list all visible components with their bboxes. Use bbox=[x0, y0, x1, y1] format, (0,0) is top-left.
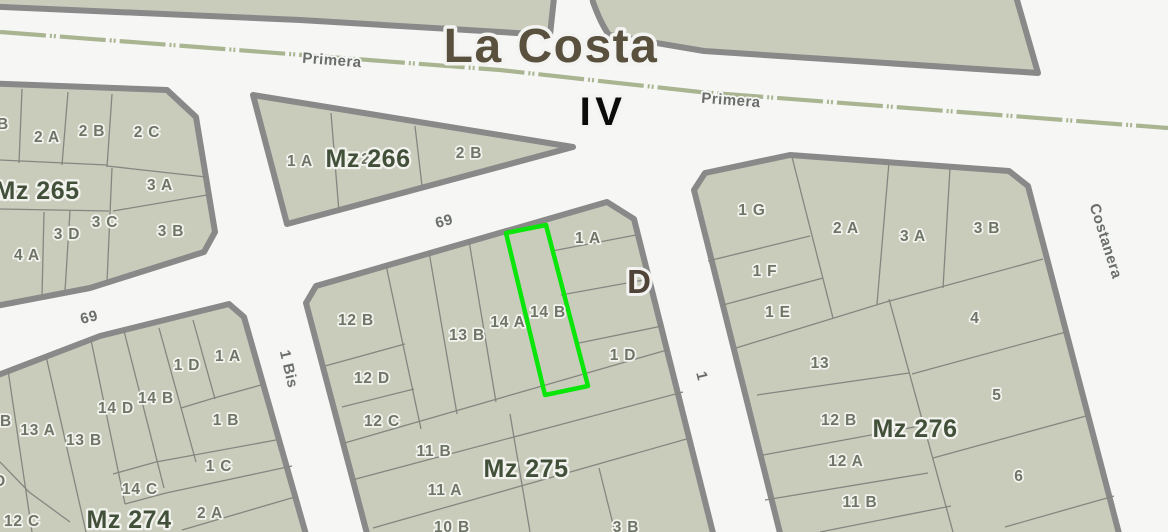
svg-text:3 A: 3 A bbox=[147, 177, 173, 194]
svg-text:3 B: 3 B bbox=[613, 519, 640, 532]
svg-text:La Costa: La Costa bbox=[444, 20, 659, 73]
svg-text:3 A: 3 A bbox=[900, 228, 926, 245]
svg-text:12 A: 12 A bbox=[828, 453, 863, 470]
svg-text:1 D: 1 D bbox=[610, 347, 637, 364]
svg-text:1 A: 1 A bbox=[575, 230, 601, 247]
svg-text:12 B: 12 B bbox=[821, 412, 857, 429]
svg-text:Mz 266: Mz 266 bbox=[326, 145, 411, 173]
svg-text:IV: IV bbox=[580, 90, 627, 134]
svg-text:4: 4 bbox=[970, 310, 979, 327]
svg-text:B: B bbox=[0, 413, 12, 430]
svg-text:Mz 275: Mz 275 bbox=[484, 455, 569, 483]
svg-text:14 B: 14 B bbox=[138, 390, 174, 407]
svg-text:6: 6 bbox=[1014, 468, 1023, 485]
svg-text:3 D: 3 D bbox=[54, 226, 81, 243]
svg-text:14 B: 14 B bbox=[530, 304, 566, 321]
svg-text:12 B: 12 B bbox=[338, 312, 374, 329]
svg-text:13 A: 13 A bbox=[20, 422, 55, 439]
svg-text:11 B: 11 B bbox=[842, 494, 877, 511]
svg-text:B: B bbox=[0, 116, 9, 133]
svg-text:11 A: 11 A bbox=[428, 482, 463, 499]
svg-text:13: 13 bbox=[811, 355, 830, 372]
svg-text:D: D bbox=[627, 263, 651, 300]
svg-text:3 B: 3 B bbox=[974, 220, 1001, 237]
svg-text:D: D bbox=[0, 473, 6, 490]
svg-text:5: 5 bbox=[992, 387, 1001, 404]
svg-text:1 A: 1 A bbox=[215, 348, 241, 365]
svg-text:Mz 276: Mz 276 bbox=[873, 415, 958, 443]
svg-text:2 B: 2 B bbox=[456, 145, 483, 162]
svg-text:3 C: 3 C bbox=[92, 214, 119, 231]
svg-text:Mz 274: Mz 274 bbox=[87, 506, 172, 532]
svg-text:14 C: 14 C bbox=[122, 481, 158, 498]
svg-text:1 A: 1 A bbox=[287, 153, 313, 170]
svg-text:2 C: 2 C bbox=[134, 124, 161, 141]
svg-text:2 A: 2 A bbox=[197, 505, 223, 522]
svg-text:12 C: 12 C bbox=[4, 513, 40, 530]
svg-text:1 E: 1 E bbox=[765, 304, 791, 321]
svg-text:1 G: 1 G bbox=[738, 202, 765, 219]
svg-text:12 C: 12 C bbox=[364, 413, 400, 430]
svg-text:1 F: 1 F bbox=[753, 263, 778, 280]
svg-text:11 B: 11 B bbox=[416, 443, 451, 460]
svg-text:2 A: 2 A bbox=[833, 220, 859, 237]
svg-text:10 B: 10 B bbox=[434, 519, 470, 532]
svg-text:13 B: 13 B bbox=[449, 327, 485, 344]
svg-text:2 A: 2 A bbox=[34, 129, 60, 146]
svg-text:4 A: 4 A bbox=[14, 247, 40, 264]
svg-text:1 B: 1 B bbox=[213, 412, 240, 429]
svg-text:1 D: 1 D bbox=[174, 357, 201, 374]
svg-text:12 D: 12 D bbox=[354, 370, 390, 387]
svg-text:13 B: 13 B bbox=[66, 432, 102, 449]
svg-text:2 B: 2 B bbox=[79, 123, 106, 140]
svg-text:3 B: 3 B bbox=[158, 223, 185, 240]
svg-text:14 A: 14 A bbox=[490, 314, 525, 331]
svg-text:14 D: 14 D bbox=[98, 400, 134, 417]
svg-text:Mz 265: Mz 265 bbox=[0, 177, 79, 205]
svg-text:1 C: 1 C bbox=[206, 458, 233, 475]
